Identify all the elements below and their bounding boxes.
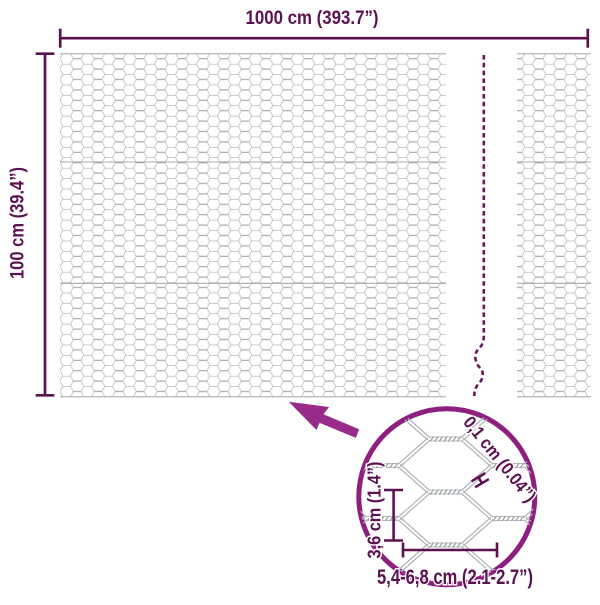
svg-text:100 cm (39.4”): 100 cm (39.4”)	[8, 167, 29, 279]
svg-text:5,4-6,8 cm (2.1-2.7”): 5,4-6,8 cm (2.1-2.7”)	[377, 566, 533, 589]
svg-text:1000 cm (393.7”): 1000 cm (393.7”)	[246, 8, 379, 29]
svg-text:3,6 cm (1.4”): 3,6 cm (1.4”)	[365, 462, 385, 559]
